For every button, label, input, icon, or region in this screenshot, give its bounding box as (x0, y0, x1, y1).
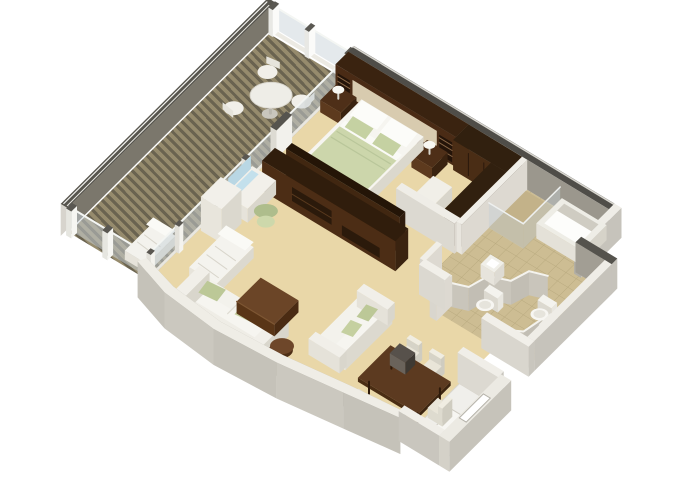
balcony-ne-post-1-side-b (269, 8, 273, 38)
balcony-w-post-1-side-a (71, 206, 77, 239)
entry-door-wall-side-b (439, 436, 449, 472)
balcony-chair-1-seat (258, 65, 278, 79)
tub-chair-seat (257, 216, 275, 228)
annex-ne-wall-side-a (612, 259, 618, 295)
floorplan-svg (0, 0, 680, 486)
balcony-w-post-2-side-b (102, 230, 107, 260)
lamp-right-shade (424, 141, 436, 149)
wc-hall-wall-side-a (529, 341, 535, 377)
floorplan-shapes (61, 0, 622, 472)
toilet-1-seat (479, 301, 491, 309)
window-mullion-3-side-b (175, 224, 179, 254)
dining-chair-head-back-side-b (438, 406, 442, 427)
balcony-ne-post-2-side-b (305, 29, 309, 59)
window-mullion-3-side-a (179, 223, 183, 254)
toilet-2-seat (534, 310, 546, 318)
balcony-table-top (250, 82, 292, 108)
lamp-left-shade (332, 86, 344, 94)
suite-floorplan: 3D isometric floor plan rendering of a s… (0, 0, 680, 486)
living-wc-wall-side-a (445, 275, 451, 311)
bath-wall-a-side-b (457, 222, 462, 255)
balcony-w-post-1-side-b (66, 208, 71, 238)
balcony-w-post-2-side-a (107, 228, 113, 261)
